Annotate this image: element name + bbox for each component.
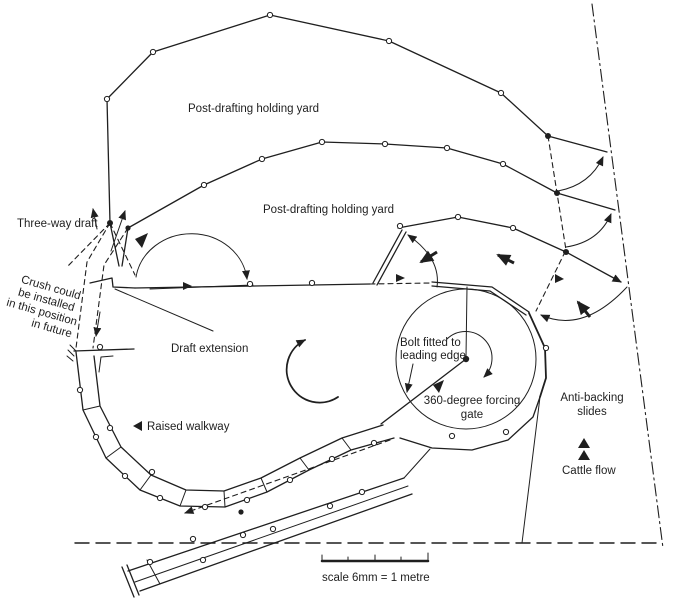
flow-arrows [421, 252, 590, 317]
label-crush-note: Crush could be installed in this positio… [1, 272, 85, 341]
label-draft-extension: Draft extension [171, 343, 248, 355]
slide-marker-icon [555, 274, 564, 283]
raised-walkway [76, 352, 394, 507]
cattle-flow-arrow-icon [578, 438, 590, 448]
label-holding-yard-top: Post-drafting holding yard [188, 103, 319, 115]
anti-backing-line1: Anti-backing [560, 392, 623, 404]
draft-fence [135, 234, 430, 290]
label-holding-yard-middle: Post-drafting holding yard [263, 204, 394, 216]
bolt-note-line1: Bolt fitted to [400, 337, 461, 349]
slide-marker-icon [396, 274, 405, 282]
forcing-gate-line2: gate [461, 409, 483, 421]
label-raised-walkway: Raised walkway [133, 421, 230, 433]
anti-backing-line2: slides [577, 406, 607, 418]
cattle-flow-legend: Cattle flow [562, 438, 616, 477]
corridor-fence [398, 217, 566, 252]
slide-marker-icon [183, 282, 192, 290]
top-yard-fence [107, 15, 548, 223]
hinge-dots [107, 133, 569, 255]
fence-posts [77, 12, 548, 564]
walkway-pointer-icon [133, 421, 142, 431]
draft-extension-line [115, 289, 213, 331]
draft-direction-icon [135, 233, 148, 248]
svg-text:Raised walkway: Raised walkway [147, 421, 230, 433]
label-anti-backing: Anti-backing slides [560, 392, 623, 418]
rotation-arrow [287, 340, 338, 403]
cattle-yard-diagram: Post-drafting holding yard Post-drafting… [0, 0, 675, 606]
race-junction-dot [238, 509, 243, 514]
label-three-way-draft: Three-way draft [17, 218, 98, 230]
label-cattle-flow: Cattle flow [562, 465, 616, 477]
cattle-yard-plan-page: Post-drafting holding yard Post-drafting… [0, 0, 675, 606]
gate-pointer-icon [433, 380, 444, 393]
bolt-note-line2: leading edge [400, 350, 466, 362]
cattle-flow-arrow-icon [578, 450, 590, 460]
scale-bar: scale 6mm = 1 metre [322, 553, 430, 584]
forcing-gate-line1: 360-degree forcing [424, 395, 521, 407]
label-scale: scale 6mm = 1 metre [322, 572, 430, 584]
